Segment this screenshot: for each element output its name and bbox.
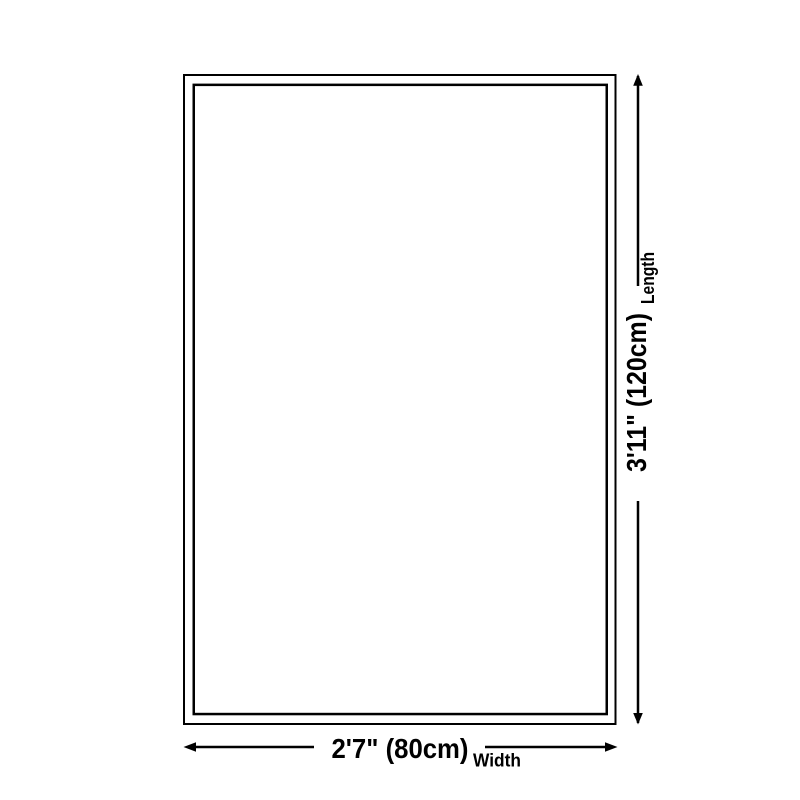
svg-text:3'11" (120cm): 3'11" (120cm) (621, 313, 652, 472)
svg-text:Width: Width (473, 750, 521, 771)
svg-text:Length: Length (638, 252, 658, 304)
svg-text:2'7" (80cm): 2'7" (80cm) (332, 733, 469, 764)
